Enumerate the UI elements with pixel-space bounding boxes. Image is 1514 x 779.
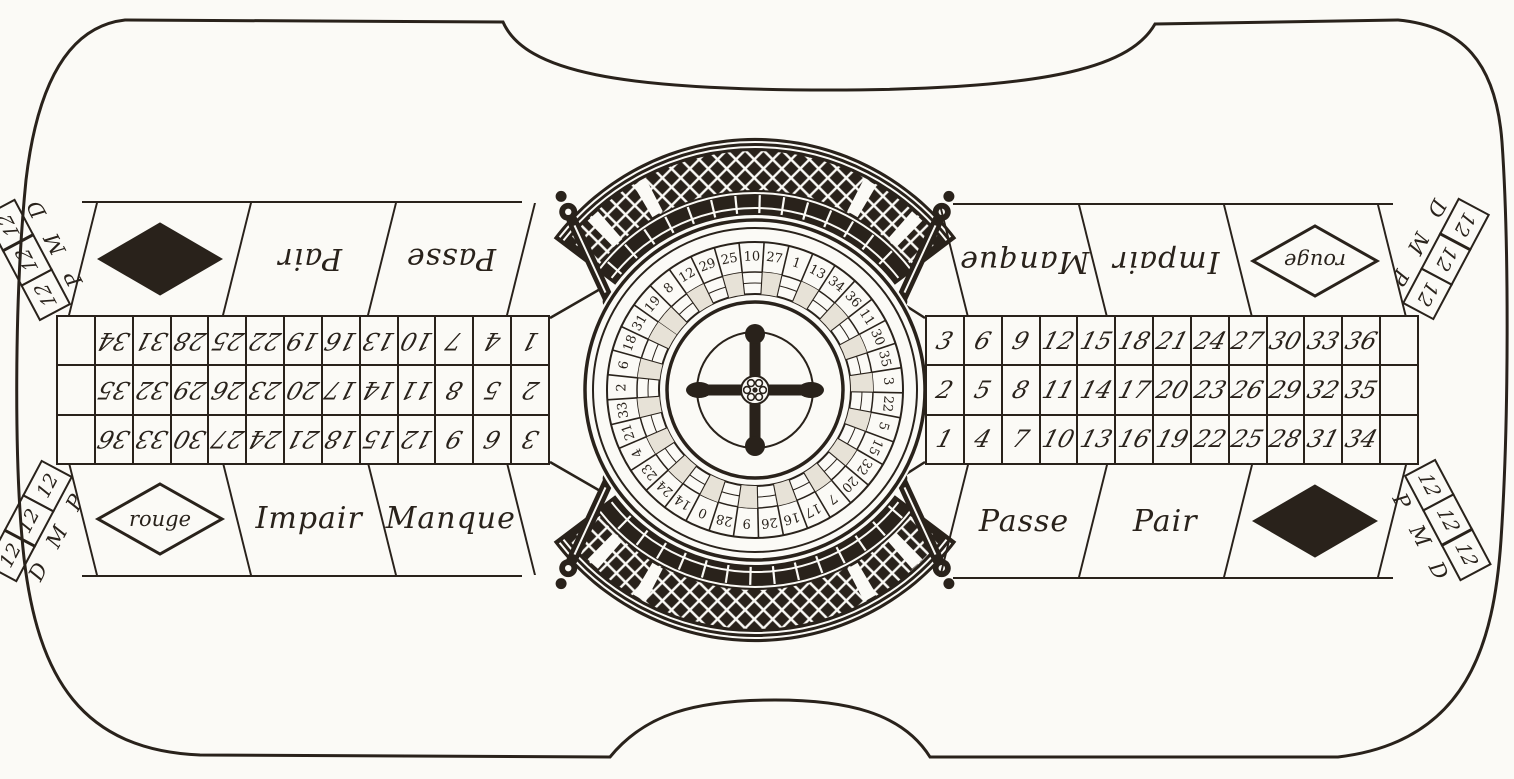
number-cell: 6 xyxy=(472,416,510,463)
number-cell: 35 xyxy=(94,366,132,413)
number-cell: 31 xyxy=(132,317,170,364)
number-cell: 4 xyxy=(472,317,510,364)
number-cell: 27 xyxy=(1230,317,1268,364)
number-cell: 30 xyxy=(1268,317,1306,364)
number-cell: 25 xyxy=(207,317,245,364)
number-cell: 28 xyxy=(170,317,208,364)
number-cell: 36 xyxy=(1343,317,1381,364)
number-cell: 4 xyxy=(965,416,1003,463)
left-betting-layout: Manque Impair rouge 36912151821242730333… xyxy=(0,195,550,585)
number-cell: 5 xyxy=(472,366,510,413)
number-cell: 31 xyxy=(1305,416,1343,463)
number-cell: 29 xyxy=(170,366,208,413)
number-cell: 2 xyxy=(510,366,548,413)
number-cell: 7 xyxy=(434,317,472,364)
impair-label: Impair xyxy=(256,502,363,537)
manque-label: Manque xyxy=(959,244,1089,279)
number-cell: 14 xyxy=(1078,366,1116,413)
number-cell: 17 xyxy=(321,366,359,413)
number-cell: 21 xyxy=(283,416,321,463)
noir-diamond-icon xyxy=(1249,481,1381,561)
number-cell: 33 xyxy=(132,416,170,463)
right-betting-layout: Manque Impair rouge 36912151821242730333… xyxy=(925,195,1475,585)
right-outer-label-band: Manque Impair rouge xyxy=(953,203,1393,317)
number-cell: 24 xyxy=(1192,317,1230,364)
noir-diamond-field xyxy=(1223,465,1407,577)
rouge-label: rouge xyxy=(1284,249,1346,273)
number-cell: 26 xyxy=(207,366,245,413)
noir-diamond-field xyxy=(68,203,252,315)
number-cell: 15 xyxy=(1078,317,1116,364)
number-cell: 23 xyxy=(1192,366,1230,413)
svg-text:33: 33 xyxy=(615,401,632,420)
number-cell: 15 xyxy=(359,416,397,463)
number-cell: 3 xyxy=(510,416,548,463)
passe-label: Passe xyxy=(406,242,496,277)
grid-row-bottom: 147101316192225283134 xyxy=(927,416,1417,463)
passe-field: Passe xyxy=(369,203,536,315)
number-cell: 2 xyxy=(927,366,965,413)
number-cell xyxy=(1381,366,1417,413)
number-cell: 20 xyxy=(283,366,321,413)
manque-field: Manque xyxy=(369,463,536,575)
svg-text:22: 22 xyxy=(879,395,896,413)
grid-row-bottom: 147101316192225283134 xyxy=(58,317,548,364)
number-cell: 29 xyxy=(1268,366,1306,413)
number-cell xyxy=(58,416,94,463)
number-cell: 6 xyxy=(965,317,1003,364)
number-cell: 21 xyxy=(1154,317,1192,364)
number-cell: 9 xyxy=(1003,317,1041,364)
pair-field: Pair xyxy=(224,203,396,315)
noir-diamond-icon xyxy=(94,219,226,299)
svg-text:25: 25 xyxy=(720,251,739,269)
grid-row-top: 369121518212427303336 xyxy=(58,414,548,463)
number-cell: 1 xyxy=(927,416,965,463)
impair-label: Impair xyxy=(1112,244,1219,279)
grid-row-top: 369121518212427303336 xyxy=(927,317,1417,366)
impair-field: Impair xyxy=(1078,205,1250,317)
number-cell: 32 xyxy=(1305,366,1343,413)
number-cell: 32 xyxy=(132,366,170,413)
left-inner-label-band: Passe Pair xyxy=(82,201,522,315)
number-cell: 13 xyxy=(1078,416,1116,463)
number-cell: 19 xyxy=(283,317,321,364)
svg-text:10: 10 xyxy=(743,249,760,264)
rouge-diamond-field: rouge xyxy=(68,463,252,575)
pair-label: Pair xyxy=(1133,504,1198,539)
number-cell: 19 xyxy=(1154,416,1192,463)
pair-label: Pair xyxy=(277,242,342,277)
number-cell: 10 xyxy=(397,317,435,364)
number-cell: 10 xyxy=(1041,416,1079,463)
grid-row-middle: 258111417202326293235 xyxy=(927,366,1417,415)
svg-text:27: 27 xyxy=(765,250,784,267)
number-cell: 16 xyxy=(321,317,359,364)
number-cell: 28 xyxy=(1268,416,1306,463)
number-cell: 18 xyxy=(1116,317,1154,364)
rouge-label: rouge xyxy=(129,507,191,531)
number-cell: 8 xyxy=(1003,366,1041,413)
number-cell: 24 xyxy=(245,416,283,463)
number-cell: 14 xyxy=(359,366,397,413)
number-cell: 22 xyxy=(1192,416,1230,463)
number-cell: 25 xyxy=(1230,416,1268,463)
number-cell: 5 xyxy=(965,366,1003,413)
number-cell: 9 xyxy=(434,416,472,463)
svg-text:26: 26 xyxy=(760,514,778,531)
number-cell: 16 xyxy=(1116,416,1154,463)
number-cell: 11 xyxy=(1041,366,1079,413)
number-cell: 26 xyxy=(1230,366,1268,413)
number-cell: 22 xyxy=(245,317,283,364)
right-inner-label-band: Passe Pair xyxy=(953,465,1393,579)
pair-field: Pair xyxy=(1078,465,1250,577)
roulette-wheel: 1981229251027113343611303532251532207171… xyxy=(581,216,929,564)
number-cell: 36 xyxy=(94,416,132,463)
number-cell: 33 xyxy=(1305,317,1343,364)
manque-label: Manque xyxy=(386,502,516,537)
number-cell: 23 xyxy=(245,366,283,413)
left-number-grid: 369121518212427303336 258111417202326293… xyxy=(56,315,550,465)
number-cell: 7 xyxy=(1003,416,1041,463)
number-cell: 17 xyxy=(1116,366,1154,413)
rouge-diamond-icon: rouge xyxy=(94,481,226,557)
number-cell: 8 xyxy=(434,366,472,413)
number-cell xyxy=(1381,416,1417,463)
number-cell: 1 xyxy=(510,317,548,364)
number-cell xyxy=(58,366,94,413)
svg-text:9: 9 xyxy=(742,515,751,530)
impair-field: Impair xyxy=(224,463,396,575)
right-number-grid: 369121518212427303336 258111417202326293… xyxy=(925,315,1419,465)
number-cell: 11 xyxy=(397,366,435,413)
svg-text:3: 3 xyxy=(880,377,896,386)
number-cell: 20 xyxy=(1154,366,1192,413)
number-cell: 34 xyxy=(1343,416,1381,463)
roulette-table-engraving: 1981229251027113343611303532251532207171… xyxy=(0,0,1514,779)
number-cell: 27 xyxy=(207,416,245,463)
number-cell: 3 xyxy=(927,317,965,364)
rouge-diamond-icon: rouge xyxy=(1249,223,1381,299)
number-cell: 18 xyxy=(321,416,359,463)
rouge-diamond-field: rouge xyxy=(1223,205,1407,317)
number-cell: 30 xyxy=(170,416,208,463)
left-outer-label-band: Manque Impair rouge xyxy=(82,463,522,577)
number-cell xyxy=(1381,317,1417,364)
number-cell: 12 xyxy=(397,416,435,463)
number-cell xyxy=(58,317,94,364)
number-cell: 34 xyxy=(94,317,132,364)
number-cell: 13 xyxy=(359,317,397,364)
number-cell: 12 xyxy=(1041,317,1079,364)
passe-label: Passe xyxy=(979,504,1069,539)
grid-row-middle: 258111417202326293235 xyxy=(58,364,548,413)
number-cell: 35 xyxy=(1343,366,1381,413)
svg-text:2: 2 xyxy=(614,383,629,392)
